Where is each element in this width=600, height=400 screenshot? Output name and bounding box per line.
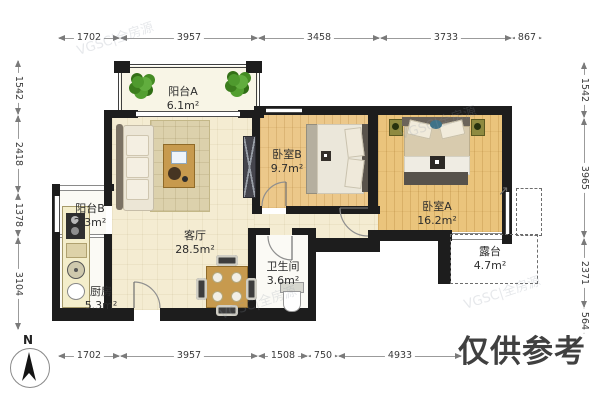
room-name: 卧室A [402,200,472,214]
dim-top-3: 3458 [258,32,380,44]
dining-chair [196,278,207,300]
sofa-body [123,125,154,211]
dim-label: 3965 [579,163,589,193]
dim-label: 750 [311,351,335,361]
wall [104,184,114,191]
dim-left-1: 1542 [12,60,24,115]
dim-top-5: 867 [512,32,542,44]
dim-label: 3957 [174,351,204,361]
dim-label: 3733 [431,33,461,43]
dim-label: 1542 [13,72,23,102]
bathroom-door [268,236,292,262]
wall [252,206,262,214]
room-name: 阳台B [55,202,125,216]
nightstand-lamp [389,119,403,136]
room-label-bedroom-b: 卧室B9.7m² [252,148,322,176]
dim-label: 1378 [13,200,23,230]
wall [104,110,112,206]
room-name: 卧室B [252,148,322,162]
room-label-bedroom-a: 卧室A16.2m² [402,200,472,228]
room-name: 露台 [455,245,525,259]
bed-a-deco [430,120,442,129]
room-area: 9.7m² [252,162,322,176]
plant-icon [228,74,240,86]
dim-label: 2418 [13,139,23,169]
room-area: 3.6m² [248,274,318,288]
dim-bottom-1: 1702 [58,350,120,362]
dim-bottom-5: 4933 [338,350,462,362]
dim-right-2: 3965 [578,118,590,238]
dim-label: 3104 [13,268,23,298]
wall [248,228,270,235]
dim-label: 1702 [74,351,104,361]
dining-chair [216,255,238,266]
dining-chair [216,305,238,316]
bed-b-pillow [344,127,364,158]
bed-b-pillow [344,158,364,189]
dim-top-4: 3733 [380,32,512,44]
room-area: 28.5m² [160,243,230,257]
room-name: 卫生间 [248,260,318,274]
room-name: 客厅 [160,229,230,243]
room-label-kitchen: 厨房5.3m² [66,285,136,313]
dim-label: 2371 [579,258,589,288]
dim-left-2: 2418 [12,115,24,193]
bedroom-b-window [266,108,302,113]
room-label-bathroom: 卫生间3.6m² [248,260,318,288]
room-label-balcony-a: 阳台A6.1m² [148,85,218,113]
wall [308,238,380,252]
dim-label: 4933 [385,351,415,361]
bedroom-a-door [340,208,368,236]
room-label-terrace: 露台4.7m² [455,245,525,273]
compass-arrow-icon [10,348,48,386]
dim-right-1: 1542 [578,62,590,118]
room-area: 16.2m² [402,214,472,228]
dim-bottom-4: 750 [308,350,338,362]
bed-a-tv-box [430,156,445,169]
dim-top-1: 1702 [58,32,120,44]
room-area: 6.1m² [148,99,218,113]
room-label-balcony-b: 阳台B2.3m² [55,202,125,230]
floorplan-screenshot: 1702 3957 3458 3733 867 1702 3957 1508 7… [0,0,600,400]
bedroom-b-door [262,182,286,206]
room-label-living: 客厅28.5m² [160,229,230,257]
dim-bottom-3: 1508 [258,350,308,362]
wall [368,106,378,208]
room-area: 2.3m² [55,216,125,230]
toilet-bowl [283,291,301,312]
column [246,61,262,73]
dim-label: 1702 [74,33,104,43]
dim-top-2: 3957 [120,32,258,44]
plant-icon [132,76,144,88]
room-area: 4.7m² [455,259,525,273]
coffee-table [163,144,195,188]
dim-label: 3458 [304,33,334,43]
dim-label: 1508 [268,351,298,361]
arrow-ne-icon: ↗ [498,184,509,199]
dim-label: 867 [515,33,539,43]
terrace-annex-outline [516,188,542,236]
reference-note: 仅供参考 [458,326,586,371]
sofa [116,124,123,210]
column [114,61,130,73]
dim-label: 1542 [579,75,589,105]
dim-left-3: 1378 [12,193,24,237]
balcony-b-railing [60,185,104,191]
compass-north-label: N [23,333,33,347]
room-name: 阳台A [148,85,218,99]
nightstand-lamp [471,119,485,136]
dim-left-4: 3104 [12,237,24,330]
entry-door [134,282,160,308]
dim-label: 3957 [174,33,204,43]
bed-a-bench [404,172,468,185]
bed-b-headboard [362,124,368,192]
room-name: 厨房 [66,285,136,299]
dim-bottom-2: 3957 [120,350,258,362]
dim-right-3: 2371 [578,238,590,308]
room-area: 5.3m² [66,299,136,313]
dining-table [206,266,248,308]
